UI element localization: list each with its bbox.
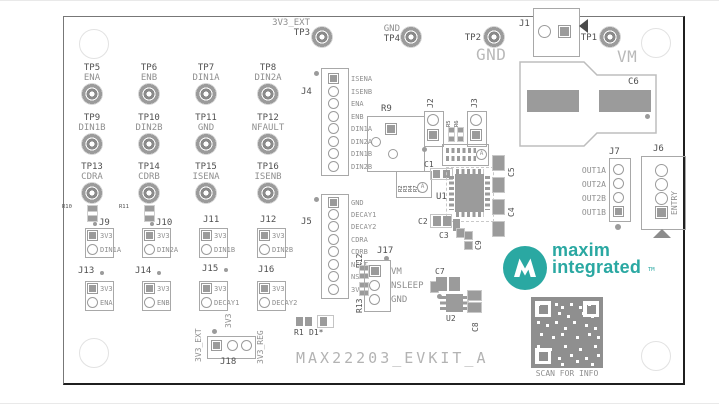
c2-ref-label: C2 [418,217,428,226]
j7-pin-label: OUT1A [566,166,606,175]
j5-pin [328,234,339,245]
j18-pin1 [211,340,222,351]
tp2-ref-label: TP2 [445,33,481,43]
jumper-bottom-label: ENA [100,299,113,307]
tp-ref-label: TP7 [178,63,234,73]
tp-net-label: ENA [64,73,120,83]
j5-pin-label: GND [351,199,364,207]
r5-ref-label: R5 [446,110,452,127]
j4-pin-label: ISENB [351,88,372,96]
j7-pin [613,178,624,189]
jumper-pin1 [201,283,212,294]
r10-resistor [87,205,98,222]
j17-pin-label: NSLEEP [391,281,424,291]
j6-pin [655,164,668,177]
mounting-hole [641,341,671,371]
c8-ref-label: C8 [471,316,480,332]
jumper-top-label: 3V3 [157,285,170,293]
jumper-top-label: 3V3 [214,232,227,240]
j6-pin [655,192,668,205]
tp-ref-label: TP13 [64,162,120,172]
mounting-hole [79,338,109,368]
jumper-pin1 [259,230,270,241]
jumper-pin [259,244,270,255]
maxim-logo-icon [503,246,547,290]
tp-net-label: ISENA [178,172,234,182]
jumper-pin1 [144,283,155,294]
tp-net-label: DIN2B [121,123,177,133]
j5-pin-label: DECAY1 [351,211,376,219]
tp-net-label: GND [178,123,234,133]
j6-pin [655,178,668,191]
tp-ref-label: TP8 [240,63,296,73]
r9-pin1 [385,123,397,135]
j4-pin-label: ISENA [351,75,372,83]
r1-ref-label: R1 [294,328,304,337]
u1-body [455,174,484,212]
c4-pad [492,199,505,215]
c4-ref-label: C4 [507,200,516,217]
jumper-ref-label: J12 [260,215,276,225]
j6-entry-label: ENTRY [670,167,679,215]
tp-ref-label: TP6 [121,63,177,73]
j6-pin1 [655,206,668,219]
j4-pin [328,123,339,134]
jumper-ref-label: J15 [202,264,218,274]
qr-caption: SCAN FOR INFO [528,369,606,378]
c9-pad [464,231,473,240]
c2-pad [443,216,451,226]
r5-resistor [448,127,455,142]
tp-ref-label: TP12 [240,113,296,123]
u2-body [446,294,463,312]
testpoint [257,182,279,204]
j2-dot [422,147,427,152]
j18-pin [227,340,238,351]
testpoint [81,133,103,155]
j17-ref-label: J17 [377,246,393,256]
c7-pad [449,277,460,291]
j18-rail-label: 3V3_REG [256,312,265,364]
j4-pin [328,98,339,109]
j5-pin [328,246,339,257]
tp4-testpoint [400,26,422,48]
jumper-top-label: 3V3 [272,285,285,293]
j7-pin [613,164,624,175]
tp-ref-label: TP9 [64,113,120,123]
d1-ref-label: D1* [309,328,323,337]
r9-ref-label: R9 [381,104,392,114]
j17-pin1 [369,265,381,277]
page-top-line [0,0,719,1]
testpoint [195,182,217,204]
mounting-hole [79,29,109,59]
jumper-bottom-label: DIN2B [272,246,293,254]
testpoint [81,182,103,204]
jumper-pin [201,244,212,255]
j5-pin [328,209,339,220]
j4-pin [328,148,339,159]
mounting-hole [641,28,671,58]
jumper-pin [144,244,155,255]
j17-pin-label: GND [391,295,407,305]
r9-pin [388,149,398,159]
tp2-net-label: GND [476,46,506,63]
c1-pad [433,170,440,178]
pad-row [446,156,476,161]
j7-pin [613,192,624,203]
c9-ref-label: C9 [474,233,483,250]
tp-ref-label: TP16 [240,162,296,172]
j17-pin [369,294,380,305]
qr-finder [535,348,551,364]
r10-ref-label: R10 [62,204,72,228]
jumper-bottom-label: DIN2A [157,246,178,254]
c2-pad [433,216,441,226]
testpoint [138,83,160,105]
jumper-pin1 [87,230,98,241]
jumper-bottom-label: DECAY1 [214,299,239,307]
j1-pin1-triangle-icon [579,19,588,33]
c6-ref-label: C6 [628,77,639,87]
tp-net-label: ENB [121,73,177,83]
tp-ref-label: TP5 [64,63,120,73]
j5-pin-label: CDRA [351,236,368,244]
jumper-bottom-label: ENB [157,299,170,307]
c4-pad [492,221,505,237]
j3-pin [470,114,482,126]
c5-pad [492,177,505,193]
j3-ref-label: J3 [470,91,479,108]
c6-pad [527,90,579,112]
j2-ref-label: J2 [426,91,435,108]
r1-pad [296,317,303,326]
c7-pad [436,277,447,291]
tp1-ref-label: TP1 [560,33,597,43]
testpoint [195,83,217,105]
tp-net-label: CDRA [64,172,120,182]
u2-ref-label: U2 [446,314,456,323]
testpoint [81,83,103,105]
j4-pin [328,161,339,172]
j18-pin [241,340,252,351]
j5-pin [328,284,339,295]
tp-net-label: DIN1A [178,73,234,83]
tp4-net-label: GND [362,24,400,34]
jumper-top-label: 3V3 [157,232,170,240]
j5-pin-label: DECAY2 [351,223,376,231]
j5-pin1-dot [314,197,319,202]
tp-net-label: NFAULT [240,123,296,133]
r1-pad [305,317,312,326]
jumper-pin [87,244,98,255]
qr-modules [537,303,540,306]
j10-pin1-dot [150,222,154,226]
tp3-net-label: 3V3_EXT [255,18,310,28]
tp4-ref-label: TP4 [362,34,400,44]
c3-ref-label: C3 [439,231,449,240]
jumper-ref-label: J14 [135,266,151,276]
jumper-top-label: 3V3 [272,232,285,240]
tp-ref-label: TP14 [121,162,177,172]
j7-ref-label: J7 [609,147,620,157]
tp-ref-label: TP15 [178,162,234,172]
c5-ref-label: C5 [507,160,516,177]
jumper-pin [87,297,98,308]
page-bottom-line [0,403,719,404]
u1-ref-label: U1 [436,192,447,202]
j13-pin1-dot [100,271,104,275]
j2-pin [427,114,439,126]
logo-word-integrated: integrated [552,258,641,276]
j4-pin-label: ENB [351,113,364,121]
u1-pins [456,212,484,217]
c7-ref-label: C7 [435,267,445,276]
j4-pin-label: ENA [351,100,364,108]
j17-pin-label: VM [391,267,402,277]
j14-pin1-dot [157,271,161,275]
j6-ref-label: J6 [653,144,664,154]
testpoint [195,133,217,155]
jumper-pin [144,297,155,308]
j4-pin [328,111,339,122]
u1-pins [449,176,454,210]
tp-ref-label: TP10 [121,113,177,123]
j5-pin [328,221,339,232]
jumper-ref-label: J10 [156,218,172,228]
j4-pin1-dot [314,71,319,76]
r6-resistor [457,127,464,142]
jumper-top-label: 3V3 [100,285,113,293]
c6-polarity-dot [645,114,650,119]
testpoint [257,133,279,155]
tp-ref-label: TP11 [178,113,234,123]
j5-ref-label: J5 [301,217,312,227]
jumper-pin1 [144,230,155,241]
jumper-ref-label: J9 [99,218,110,228]
r9-pin [371,137,381,147]
j5-pin [328,271,339,282]
variant-a-marker: A [417,182,428,193]
j6-pin1-triangle-icon [653,229,671,238]
testpoint [138,182,160,204]
qr-finder [583,301,599,317]
j4-pin1 [328,73,339,84]
tp-net-label: ISENB [240,172,296,182]
tp-net-label: DIN2A [240,73,296,83]
j4-pin [328,136,339,147]
variant-a-marker: A [476,149,487,160]
j7-pin1-dot [615,224,621,230]
tp-net-label: CDRB [121,172,177,182]
tp1-testpoint [599,26,621,48]
j4-ref-label: J4 [301,87,312,97]
jumper-pin [201,297,212,308]
pad-row [446,148,476,153]
j7-pin1 [613,206,624,217]
jumper-bottom-label: DIN1B [214,246,235,254]
jumper-top-label: 3V3 [100,232,113,240]
jumper-pin1 [259,283,270,294]
c9-pad [464,241,473,250]
qr-code [531,297,603,368]
board-title: MAX22203_EVKIT_A [296,350,489,367]
j18-ref-label: J18 [220,357,236,367]
j5-pin1 [328,197,339,208]
r6-ref-label: R6 [454,110,460,127]
j1-pin [538,25,551,38]
j7-pin-label: OUT2A [566,180,606,189]
j18-rail-label: 3V3_EXT [194,312,203,362]
jumper-pin [259,297,270,308]
c6-pad [599,90,651,112]
r11-ref-label: R11 [119,204,129,228]
c8-pad [467,290,482,301]
j4-header [321,68,349,176]
j5-pin [328,259,339,270]
jumper-top-label: 3V3 [214,285,227,293]
j4-pin [328,86,339,97]
j7-pin-label: OUT1B [566,208,606,217]
pcb-screenshot: 3V3_EXT TP3 GND TP4 TP2 GND J1 TP1 VM C6… [0,0,719,405]
j17-pin [369,280,380,291]
j15-pin1-dot [224,268,228,272]
testpoint [138,133,160,155]
j2-pin1 [427,129,439,141]
jumper-bottom-label: DECAY2 [272,299,297,307]
u1-pins [485,176,490,210]
tp-net-label: DIN1B [64,123,120,133]
j9-pin1-dot [93,222,97,226]
c8-pad [467,302,482,313]
j18-rail-label: 3V3 [224,311,233,328]
d1-pad [320,317,327,326]
c5-pad [492,155,505,171]
jumper-ref-label: J16 [258,265,274,275]
r11-resistor [144,205,155,222]
jumper-ref-label: J11 [203,215,219,225]
jumper-pin1 [87,283,98,294]
j3-pin1 [470,129,482,141]
j18-pin1-dot [212,329,217,334]
trademark-symbol: TM [648,267,655,273]
jumper-bottom-label: DIN1A [100,246,121,254]
testpoint [257,83,279,105]
tp3-ref-label: TP3 [270,28,310,38]
jumper-pin1 [201,230,212,241]
j1-ref-label: J1 [519,19,530,29]
jumper-ref-label: J13 [78,266,94,276]
j7-pin-label: OUT2B [566,194,606,203]
tp3-testpoint [311,26,333,48]
